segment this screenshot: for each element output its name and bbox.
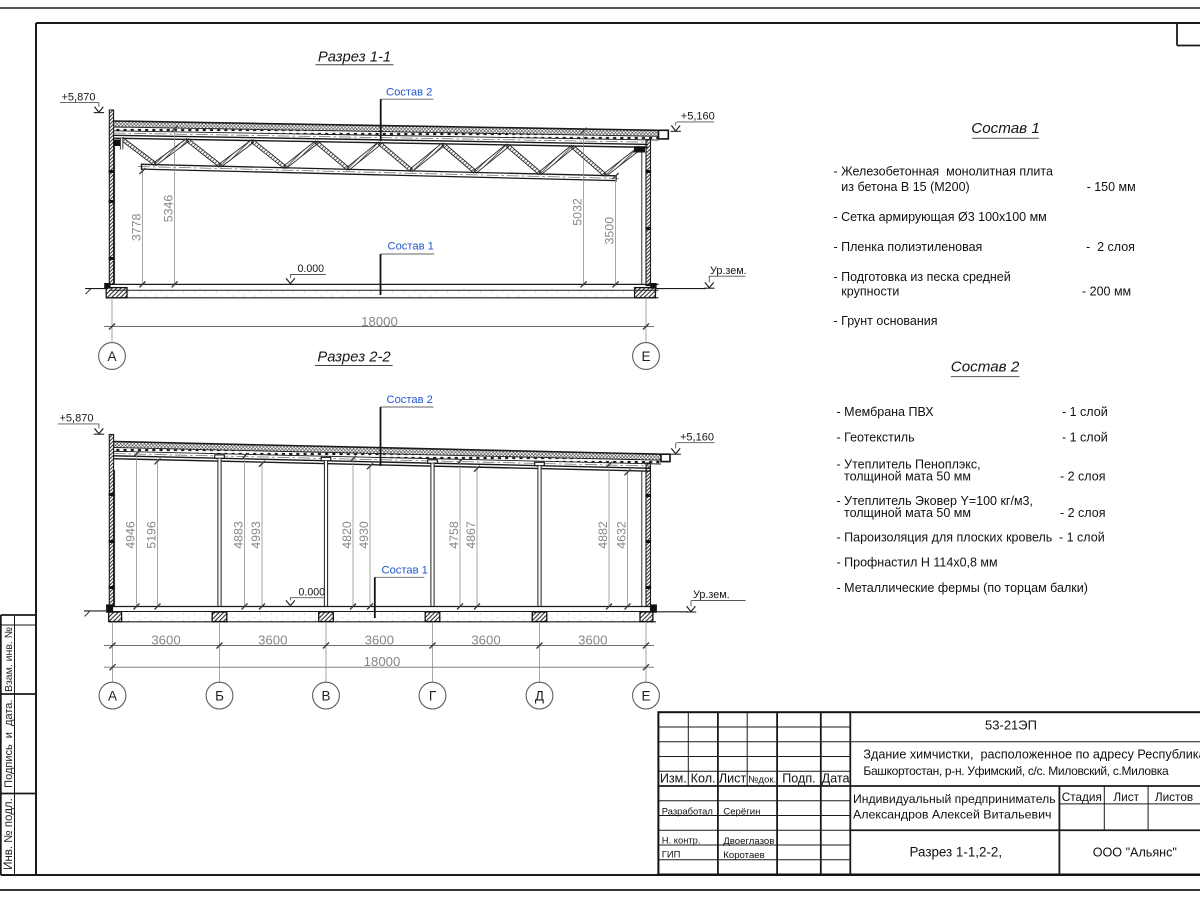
svg-text:Дата: Дата bbox=[822, 772, 850, 786]
svg-text:Башкортостан, р-н. Уфимский, с: Башкортостан, р-н. Уфимский, с/с. Миловс… bbox=[863, 764, 1169, 778]
svg-text:Разрез 1-1: Разрез 1-1 bbox=[318, 50, 391, 66]
svg-text:- Мембрана ПВХ: - Мембрана ПВХ bbox=[837, 405, 935, 419]
svg-text:5196: 5196 bbox=[145, 521, 159, 549]
svg-text:Состав 1: Состав 1 bbox=[382, 565, 428, 577]
svg-text:- 150 мм: - 150 мм bbox=[1087, 180, 1136, 194]
svg-text:Лист: Лист bbox=[719, 772, 747, 786]
svg-text:- 2 слоя: - 2 слоя bbox=[1060, 506, 1105, 520]
svg-text:Ур.зем.: Ур.зем. bbox=[693, 589, 730, 601]
svg-text:Ур.зем.: Ур.зем. bbox=[710, 265, 747, 277]
svg-text:4930: 4930 bbox=[357, 521, 371, 549]
svg-text:Д: Д bbox=[535, 688, 544, 703]
svg-text:- Железобетонная монолитная п: - Железобетонная монолитная плита bbox=[834, 165, 1053, 179]
svg-text:Листов: Листов bbox=[1155, 790, 1193, 804]
svg-text:- 1 слой: - 1 слой bbox=[1062, 431, 1108, 445]
svg-text:Разработал: Разработал bbox=[662, 805, 713, 816]
svg-text:+5,870: +5,870 bbox=[60, 413, 94, 425]
svg-text:4946: 4946 bbox=[124, 521, 138, 549]
svg-text:- 1 слой: - 1 слой bbox=[1059, 530, 1105, 544]
svg-text:- 1 слой: - 1 слой bbox=[1062, 405, 1108, 419]
svg-text:А: А bbox=[108, 688, 117, 703]
svg-text:Лист: Лист bbox=[1113, 790, 1139, 804]
svg-text:Состав 1: Состав 1 bbox=[971, 120, 1040, 137]
svg-text:- Грунт основания: - Грунт основания bbox=[834, 314, 938, 328]
svg-text:толщиной мата 50 мм: толщиной мата 50 мм bbox=[844, 469, 971, 483]
svg-text:№док.: №док. bbox=[748, 775, 776, 786]
svg-text:Состав 1: Состав 1 bbox=[388, 240, 434, 252]
svg-text:3600: 3600 bbox=[365, 632, 394, 647]
svg-text:- Подготовка из песка средней: - Подготовка из песка средней bbox=[834, 270, 1011, 284]
svg-text:0.000: 0.000 bbox=[299, 586, 326, 598]
svg-text:из бетона В 15 (М200): из бетона В 15 (М200) bbox=[841, 180, 969, 194]
svg-text:Коротаев: Коротаев bbox=[723, 850, 764, 861]
svg-text:- Металлические фермы (по торц: - Металлические фермы (по торцам балки) bbox=[837, 581, 1088, 595]
svg-text:4883: 4883 bbox=[232, 521, 246, 549]
svg-text:Стадия: Стадия bbox=[1062, 790, 1102, 804]
svg-text:В: В bbox=[321, 688, 330, 703]
svg-text:Б: Б bbox=[215, 688, 224, 703]
svg-text:- Пленка полиэтиленовая: - Пленка полиэтиленовая bbox=[834, 240, 983, 254]
svg-text:Здание химчистки, расположенн: Здание химчистки, расположенное по адрес… bbox=[863, 748, 1200, 762]
svg-text:Александров Алексей Витальевич: Александров Алексей Витальевич bbox=[853, 808, 1051, 822]
svg-text:4882: 4882 bbox=[596, 521, 610, 549]
svg-text:- Геотекстиль: - Геотекстиль bbox=[837, 431, 915, 445]
svg-text:Е: Е bbox=[641, 688, 650, 703]
svg-text:4758: 4758 bbox=[447, 521, 461, 549]
svg-text:53-21ЭП: 53-21ЭП bbox=[985, 718, 1037, 733]
svg-text:ГИП: ГИП bbox=[662, 848, 681, 859]
svg-text:3600: 3600 bbox=[151, 632, 180, 647]
svg-text:Состав 2: Состав 2 bbox=[387, 394, 433, 406]
svg-text:Двоеглазов: Двоеглазов bbox=[723, 836, 774, 847]
svg-text:0.000: 0.000 bbox=[298, 263, 325, 275]
svg-text:3778: 3778 bbox=[130, 214, 144, 242]
svg-text:Разрез 2-2: Разрез 2-2 bbox=[317, 349, 391, 365]
svg-text:- 2 слоя: - 2 слоя bbox=[1086, 240, 1135, 254]
svg-text:3500: 3500 bbox=[603, 217, 617, 245]
svg-text:крупности: крупности bbox=[841, 285, 899, 299]
svg-text:4993: 4993 bbox=[249, 521, 263, 549]
svg-text:Подпись и дата.: Подпись и дата. bbox=[3, 700, 15, 788]
svg-text:3600: 3600 bbox=[258, 632, 287, 647]
svg-text:+5,160: +5,160 bbox=[680, 431, 714, 443]
svg-text:Разрез 1-1,2-2,: Разрез 1-1,2-2, bbox=[910, 845, 1003, 860]
svg-text:18000: 18000 bbox=[361, 314, 398, 329]
svg-text:Кол.: Кол. bbox=[691, 772, 716, 786]
svg-text:4632: 4632 bbox=[615, 521, 629, 549]
svg-text:Индивидуальный предприниматель: Индивидуальный предприниматель bbox=[853, 792, 1056, 806]
svg-text:3600: 3600 bbox=[471, 632, 500, 647]
svg-text:Г: Г bbox=[429, 688, 437, 703]
svg-text:Изм.: Изм. bbox=[660, 772, 687, 786]
svg-text:- Сетка армирующая Ø3 100х100: - Сетка армирующая Ø3 100х100 мм bbox=[834, 210, 1047, 224]
svg-text:Е: Е bbox=[641, 349, 650, 364]
svg-text:5032: 5032 bbox=[571, 198, 585, 226]
svg-text:18000: 18000 bbox=[364, 654, 401, 669]
svg-text:- 200 мм: - 200 мм bbox=[1082, 285, 1131, 299]
svg-text:- 2 слоя: - 2 слоя bbox=[1060, 469, 1105, 483]
svg-text:толщиной мата 50 мм: толщиной мата 50 мм bbox=[844, 506, 971, 520]
svg-text:+5,870: +5,870 bbox=[62, 91, 96, 103]
svg-text:5346: 5346 bbox=[162, 195, 176, 223]
svg-text:+5,160: +5,160 bbox=[681, 111, 715, 123]
svg-text:Инв. № подл.: Инв. № подл. bbox=[3, 798, 15, 870]
svg-text:Подп.: Подп. bbox=[782, 772, 815, 786]
svg-text:- Пароизоляция для плоских кро: - Пароизоляция для плоских кровель bbox=[837, 530, 1053, 544]
svg-text:4820: 4820 bbox=[340, 521, 354, 549]
svg-text:ООО "Альянс": ООО "Альянс" bbox=[1093, 845, 1177, 859]
svg-text:Состав 2: Состав 2 bbox=[386, 87, 432, 99]
svg-text:3600: 3600 bbox=[578, 632, 607, 647]
svg-text:Серёгин: Серёгин bbox=[723, 806, 760, 817]
svg-text:Состав 2: Состав 2 bbox=[951, 359, 1020, 376]
svg-text:Взам. инв. №: Взам. инв. № bbox=[3, 627, 15, 692]
svg-text:А: А bbox=[107, 349, 116, 364]
svg-text:4867: 4867 bbox=[464, 521, 478, 549]
svg-text:- Профнастил Н 114х0,8 мм: - Профнастил Н 114х0,8 мм bbox=[837, 556, 998, 570]
svg-text:Н. контр.: Н. контр. bbox=[662, 834, 701, 845]
